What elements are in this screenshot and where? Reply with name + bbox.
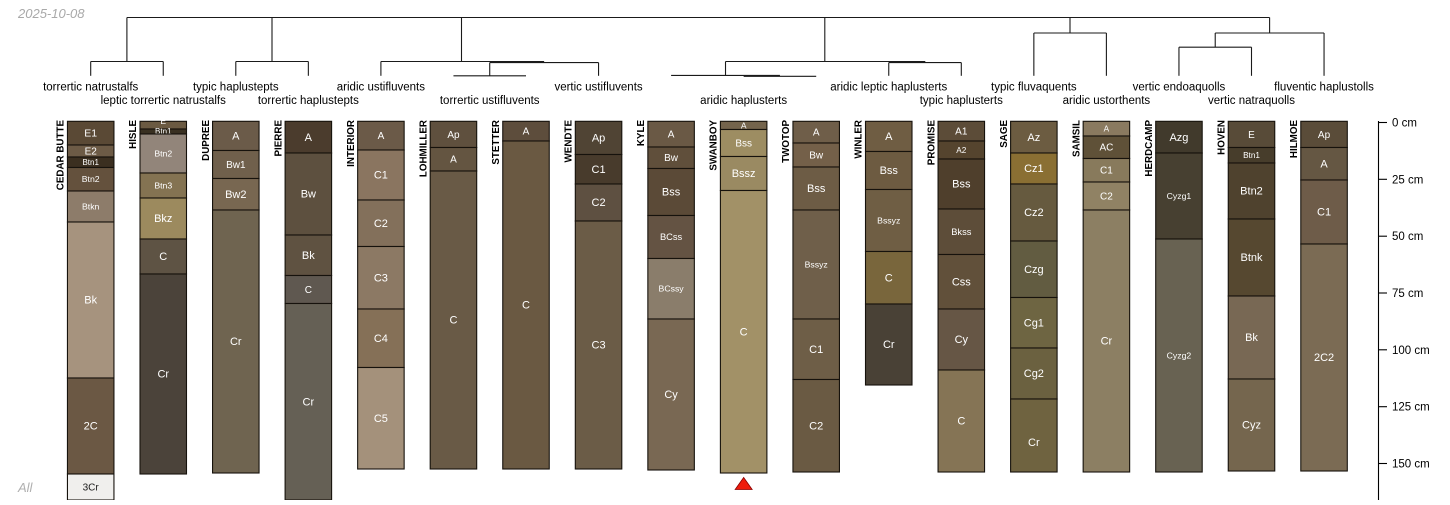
svg-text:Bkss: Bkss — [951, 227, 971, 237]
svg-text:Bss: Bss — [807, 183, 826, 195]
svg-text:SAMSIL: SAMSIL — [1071, 120, 1082, 157]
svg-text:aridic leptic haplusterts: aridic leptic haplusterts — [830, 82, 947, 94]
svg-text:Czg: Czg — [1024, 264, 1044, 276]
svg-text:100 cm: 100 cm — [1392, 345, 1430, 357]
svg-text:torrertic natrustalfs: torrertic natrustalfs — [43, 82, 138, 94]
svg-text:2025-10-08: 2025-10-08 — [17, 6, 85, 21]
svg-text:aridic ustifluvents: aridic ustifluvents — [337, 82, 425, 94]
svg-text:25 cm: 25 cm — [1392, 174, 1423, 186]
svg-text:Bss: Bss — [880, 165, 899, 177]
svg-text:E2: E2 — [85, 146, 98, 157]
svg-text:Bss: Bss — [735, 138, 752, 149]
svg-text:0 cm: 0 cm — [1392, 118, 1417, 130]
svg-text:75 cm: 75 cm — [1392, 288, 1423, 300]
svg-text:Bss: Bss — [952, 179, 971, 191]
svg-text:Cyz: Cyz — [1242, 420, 1261, 432]
svg-text:Cr: Cr — [157, 369, 169, 381]
svg-text:Bk: Bk — [1245, 332, 1258, 344]
svg-text:C3: C3 — [592, 340, 606, 352]
svg-text:Cr: Cr — [1101, 336, 1113, 348]
svg-text:Btkn: Btkn — [82, 201, 100, 211]
svg-text:Bk: Bk — [302, 250, 315, 262]
svg-text:AC: AC — [1099, 143, 1113, 154]
svg-text:Btn1: Btn1 — [1243, 151, 1260, 160]
svg-text:SAGE: SAGE — [999, 120, 1010, 148]
svg-text:Btn3: Btn3 — [154, 180, 172, 190]
svg-text:vertic natraquolls: vertic natraquolls — [1208, 95, 1295, 107]
svg-text:DUPREE: DUPREE — [201, 120, 212, 161]
svg-text:torrertic haplustepts: torrertic haplustepts — [258, 95, 359, 107]
svg-text:TWOTOP: TWOTOP — [781, 120, 792, 163]
svg-text:Cg2: Cg2 — [1024, 368, 1044, 380]
svg-text:C1: C1 — [374, 170, 388, 182]
svg-text:A: A — [450, 155, 457, 166]
svg-text:Cz2: Cz2 — [1024, 207, 1044, 219]
svg-text:HERDCAMP: HERDCAMP — [1144, 120, 1155, 177]
svg-text:Btn1: Btn1 — [82, 158, 99, 167]
svg-text:C2: C2 — [1100, 191, 1113, 202]
svg-text:A: A — [523, 127, 530, 138]
svg-text:Az: Az — [1027, 132, 1040, 144]
svg-text:C: C — [957, 416, 965, 428]
svg-text:Css: Css — [952, 276, 971, 288]
svg-text:2C2: 2C2 — [1314, 352, 1334, 364]
svg-text:C: C — [740, 326, 748, 338]
svg-text:torrertic ustifluvents: torrertic ustifluvents — [440, 95, 540, 107]
svg-text:BCssy: BCssy — [659, 284, 685, 294]
svg-text:C1: C1 — [1100, 166, 1113, 177]
svg-text:A: A — [885, 131, 893, 143]
svg-text:C: C — [449, 315, 457, 327]
svg-text:HOVEN: HOVEN — [1216, 120, 1227, 155]
svg-text:Btnk: Btnk — [1240, 252, 1263, 264]
svg-text:50 cm: 50 cm — [1392, 231, 1423, 243]
svg-text:C3: C3 — [374, 272, 388, 284]
svg-text:A2: A2 — [956, 146, 966, 155]
svg-text:Azg: Azg — [1169, 132, 1188, 144]
svg-text:STETTER: STETTER — [491, 120, 502, 165]
svg-text:Bw: Bw — [809, 150, 824, 161]
svg-text:Bssz: Bssz — [732, 168, 756, 180]
svg-text:125 cm: 125 cm — [1392, 402, 1430, 414]
svg-text:Cr: Cr — [303, 396, 315, 408]
svg-text:A: A — [741, 120, 747, 130]
svg-text:E: E — [1248, 130, 1255, 141]
svg-text:C: C — [885, 272, 893, 284]
svg-text:C4: C4 — [374, 333, 388, 345]
svg-text:C2: C2 — [374, 218, 388, 230]
svg-text:Bss: Bss — [662, 187, 681, 199]
svg-text:Ap: Ap — [1318, 130, 1331, 141]
svg-text:A: A — [813, 128, 820, 139]
svg-text:150 cm: 150 cm — [1392, 459, 1430, 471]
svg-text:vertic ustifluvents: vertic ustifluvents — [554, 82, 642, 94]
svg-text:C: C — [159, 251, 167, 263]
svg-text:Ap: Ap — [592, 133, 605, 145]
svg-text:All: All — [17, 480, 34, 495]
svg-text:Bw1: Bw1 — [226, 160, 246, 171]
svg-text:HILMOE: HILMOE — [1289, 120, 1300, 159]
svg-text:Bssyz: Bssyz — [805, 259, 828, 269]
svg-text:A: A — [1320, 158, 1328, 170]
svg-text:Cr: Cr — [1028, 437, 1040, 449]
svg-text:Btn2: Btn2 — [1240, 186, 1263, 198]
svg-text:Bw2: Bw2 — [225, 189, 246, 201]
svg-text:A: A — [378, 131, 385, 142]
svg-text:Cg1: Cg1 — [1024, 317, 1044, 329]
svg-text:Bw: Bw — [301, 189, 316, 201]
svg-text:Ap: Ap — [447, 130, 460, 141]
svg-text:typic fluvaquents: typic fluvaquents — [991, 82, 1077, 94]
svg-text:LOHMILLER: LOHMILLER — [418, 120, 429, 177]
svg-text:Cr: Cr — [883, 339, 895, 351]
svg-text:Cy: Cy — [955, 334, 969, 346]
svg-text:C2: C2 — [809, 420, 823, 432]
svg-text:typic haplusterts: typic haplusterts — [920, 95, 1003, 107]
svg-text:C2: C2 — [592, 197, 606, 209]
svg-text:Cy: Cy — [664, 389, 678, 401]
svg-text:C1: C1 — [809, 344, 823, 356]
svg-text:A: A — [232, 131, 240, 143]
svg-text:fluventic haplustolls: fluventic haplustolls — [1274, 82, 1374, 94]
svg-text:A1: A1 — [955, 127, 968, 138]
svg-text:Cr: Cr — [230, 336, 242, 348]
svg-text:CEDAR BUTTE: CEDAR BUTTE — [56, 120, 67, 191]
svg-text:Cyzg2: Cyzg2 — [1167, 350, 1192, 360]
svg-text:aridic haplusterts: aridic haplusterts — [700, 95, 787, 107]
svg-text:BCss: BCss — [660, 232, 683, 242]
svg-text:SWANBOY: SWANBOY — [709, 120, 720, 171]
svg-text:Cz1: Cz1 — [1024, 163, 1044, 175]
svg-text:E1: E1 — [84, 128, 97, 140]
svg-text:C1: C1 — [1317, 207, 1331, 219]
svg-text:PROMISE: PROMISE — [926, 120, 937, 166]
svg-text:Bkz: Bkz — [154, 213, 172, 225]
svg-text:A: A — [668, 130, 675, 141]
svg-text:A: A — [1104, 124, 1110, 133]
svg-text:C1: C1 — [592, 164, 606, 176]
svg-text:WENDTE: WENDTE — [564, 120, 575, 163]
svg-text:typic haplustepts: typic haplustepts — [193, 82, 279, 94]
svg-text:Btn2: Btn2 — [154, 148, 172, 158]
svg-text:HISLE: HISLE — [128, 120, 139, 149]
svg-text:2C: 2C — [84, 421, 98, 433]
svg-text:Btn2: Btn2 — [82, 174, 100, 184]
svg-text:A: A — [305, 132, 313, 144]
svg-text:Bw: Bw — [664, 153, 679, 164]
svg-text:C5: C5 — [374, 413, 388, 425]
svg-text:3Cr: 3Cr — [83, 482, 100, 493]
svg-text:Cyzg1: Cyzg1 — [1167, 191, 1192, 201]
svg-text:vertic endoaquolls: vertic endoaquolls — [1133, 82, 1226, 94]
svg-text:C: C — [522, 300, 530, 312]
svg-text:E: E — [160, 116, 166, 126]
svg-text:KYLE: KYLE — [636, 120, 647, 147]
svg-text:PIERRE: PIERRE — [273, 120, 284, 157]
svg-text:C: C — [305, 285, 312, 296]
svg-text:WINLER: WINLER — [854, 120, 865, 159]
svg-text:Bk: Bk — [84, 295, 97, 307]
svg-text:Bssyz: Bssyz — [877, 215, 900, 225]
svg-text:leptic torrertic natrustalfs: leptic torrertic natrustalfs — [101, 95, 227, 107]
svg-text:aridic ustorthents: aridic ustorthents — [1063, 95, 1151, 107]
svg-text:INTERIOR: INTERIOR — [346, 120, 357, 167]
